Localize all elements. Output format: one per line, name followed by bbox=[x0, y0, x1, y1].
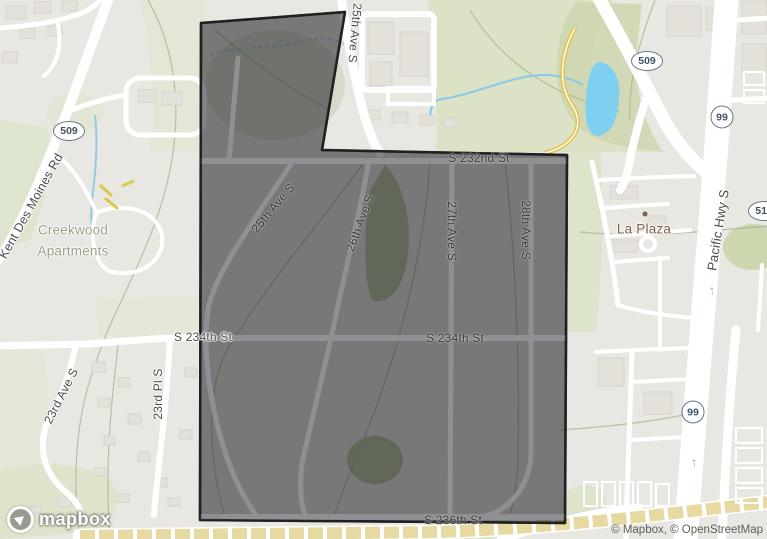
highway-shield-509-east: 509 bbox=[631, 51, 663, 71]
mapbox-logo[interactable]: mapbox bbox=[7, 506, 111, 533]
road-label-s-232nd-st: S 232nd St bbox=[448, 151, 509, 165]
highway-shield-509-west: 509 bbox=[53, 121, 85, 141]
highlight-polygon-layer bbox=[0, 0, 767, 539]
road-label-28th-ave-s: 28th Ave S bbox=[519, 200, 533, 260]
shield-text: 99 bbox=[687, 406, 699, 418]
mapbox-wordmark: mapbox bbox=[39, 509, 111, 530]
shield-text: 516 bbox=[755, 205, 767, 217]
road-label-27th-ave-s: 27th Ave S bbox=[445, 201, 459, 261]
area-label-creekwood: Creekwood bbox=[38, 223, 108, 238]
road-label-23rd-pl-s: 23rd Pl S bbox=[151, 368, 165, 419]
poi-dot-la-plaza bbox=[643, 212, 648, 217]
poi-label-la-plaza: La Plaza bbox=[617, 222, 671, 237]
mapbox-logo-icon bbox=[7, 506, 34, 533]
attribution-mapbox-link[interactable]: © Mapbox, bbox=[611, 524, 670, 536]
shield-text: 509 bbox=[638, 55, 656, 67]
highway-shield-99-south: 99 bbox=[682, 401, 705, 424]
highlighted-region-polygon bbox=[200, 12, 567, 523]
road-label-s-234th-st: S 234th St bbox=[426, 331, 484, 345]
shield-text: 509 bbox=[60, 125, 78, 137]
map-canvas[interactable]: Kent Des Moines Rd Creekwood Apartments … bbox=[0, 0, 767, 539]
shield-text: 99 bbox=[716, 111, 728, 123]
highway-shield-99-north: 99 bbox=[711, 106, 734, 129]
road-label-s-236th-st: S 236th St bbox=[424, 513, 482, 527]
one-way-arrow-icon: ↑ bbox=[690, 454, 698, 469]
map-attribution: © Mapbox, © OpenStreetMap bbox=[611, 524, 763, 536]
one-way-arrow-icon: ↑ bbox=[708, 282, 716, 297]
area-label-apartments: Apartments bbox=[37, 244, 108, 259]
attribution-osm-link[interactable]: © OpenStreetMap bbox=[670, 524, 763, 536]
road-label-s-234th-st-west: S 234th St bbox=[174, 330, 232, 344]
